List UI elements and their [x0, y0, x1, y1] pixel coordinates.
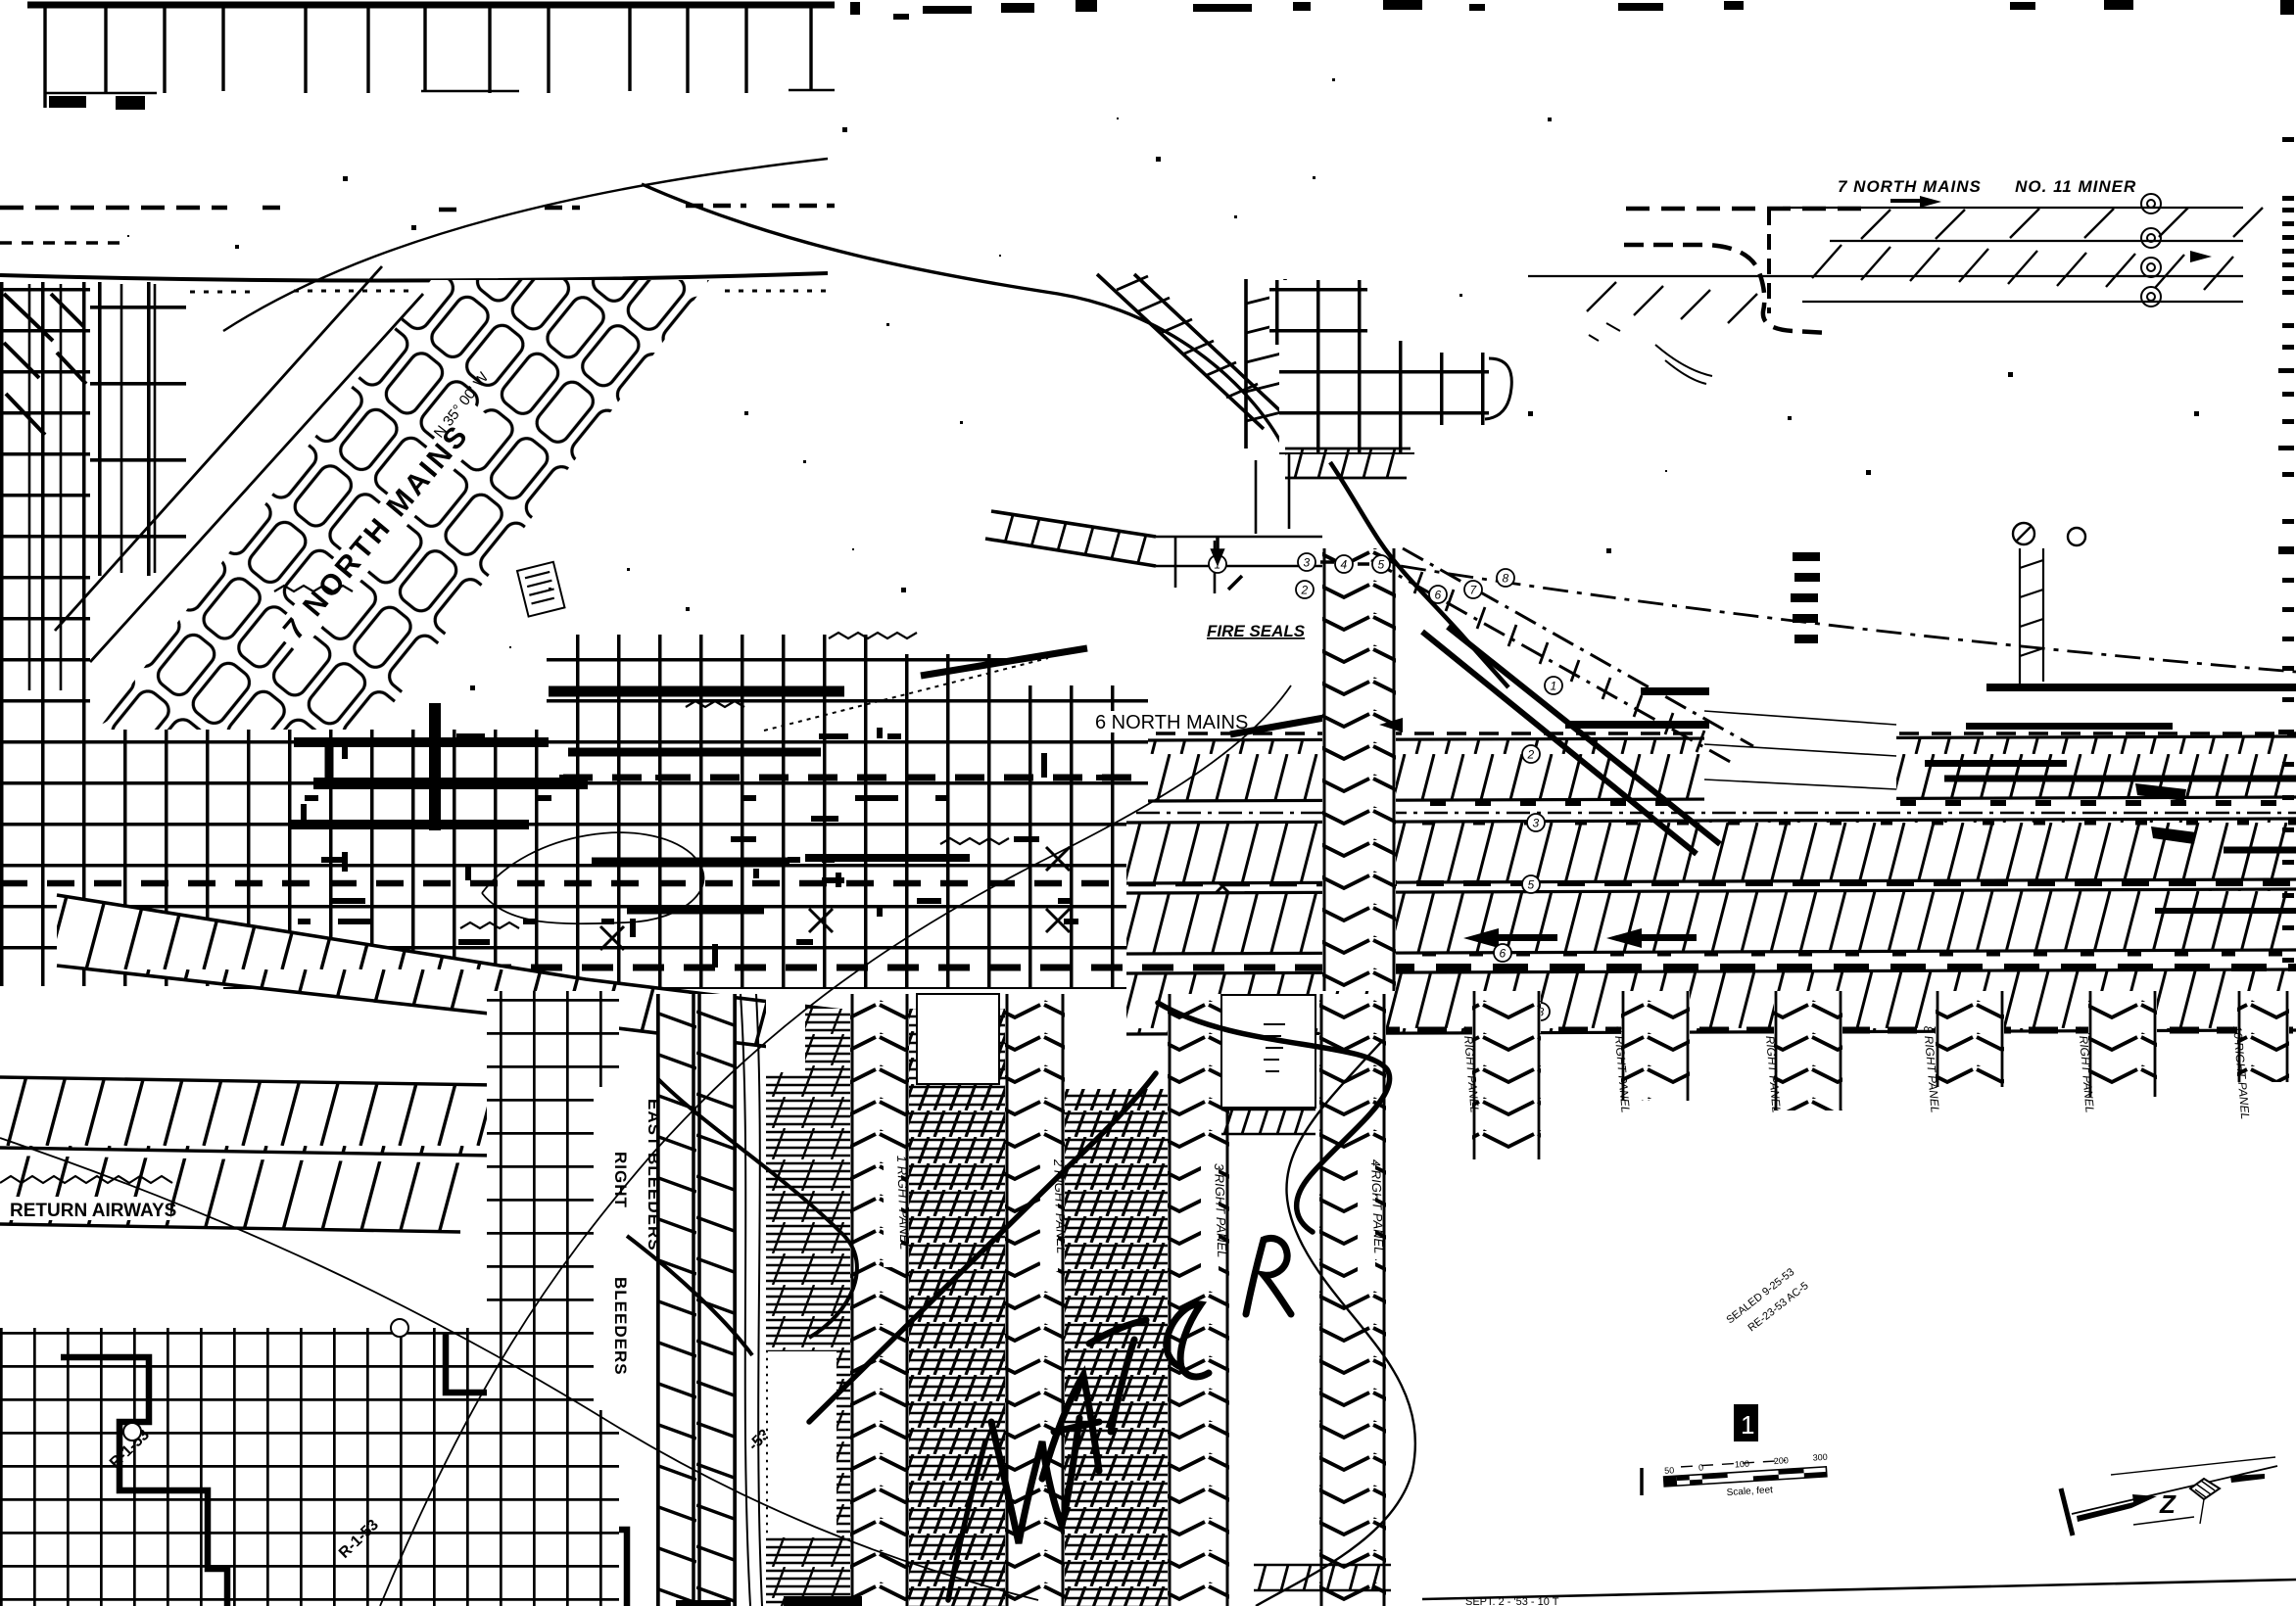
svg-text:RETURN AIRWAYS: RETURN AIRWAYS [10, 1201, 176, 1221]
svg-text:FIRE SEALS: FIRE SEALS [1207, 622, 1306, 640]
svg-text:2: 2 [1527, 748, 1535, 762]
svg-text:5: 5 [1528, 878, 1535, 892]
svg-text:50: 50 [1664, 1465, 1675, 1476]
svg-text:BLEEDERS: BLEEDERS [611, 1277, 630, 1376]
svg-text:8: 8 [1503, 572, 1509, 586]
svg-text:1: 1 [1551, 680, 1557, 693]
svg-text:300: 300 [1812, 1452, 1828, 1463]
svg-text:5: 5 [1378, 558, 1385, 572]
svg-text:7 NORTH MAINS NO. 11 MIN: 7 NORTH MAINS NO. 11 MINER [1838, 177, 2136, 196]
svg-text:EAST BLEEDERS: EAST BLEEDERS [645, 1099, 663, 1252]
svg-text:4: 4 [1341, 558, 1348, 572]
svg-text:0: 0 [1698, 1462, 1704, 1472]
svg-text:200: 200 [1774, 1455, 1790, 1466]
svg-text:3: 3 [1533, 817, 1540, 830]
svg-text:100: 100 [1735, 1459, 1750, 1470]
svg-text:1: 1 [1741, 1410, 1754, 1440]
svg-text:6: 6 [1500, 947, 1507, 961]
svg-text:SEPT. 2 - '53 - 10 T: SEPT. 2 - '53 - 10 T [1465, 1596, 1559, 1606]
svg-text:3: 3 [1304, 556, 1311, 570]
svg-text:6: 6 [1435, 589, 1442, 602]
svg-text:6 NORTH MAINS: 6 NORTH MAINS [1095, 712, 1248, 733]
svg-text:Z: Z [2159, 1489, 2176, 1519]
svg-text:2: 2 [1301, 584, 1309, 597]
